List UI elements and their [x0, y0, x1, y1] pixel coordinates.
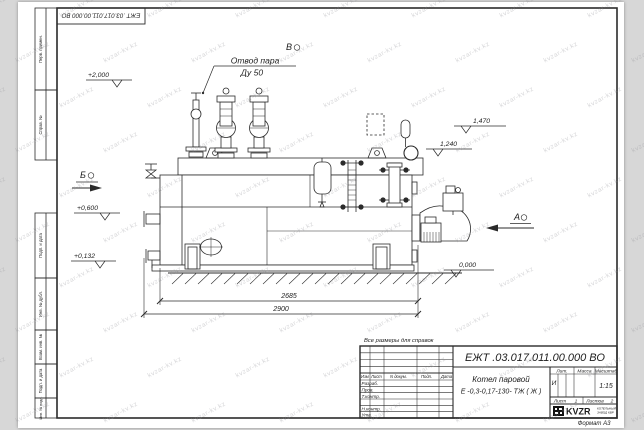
- format-note: Формат А3: [578, 421, 611, 427]
- steam-outlet-valve: [186, 93, 206, 157]
- view-label-a: А: [486, 212, 534, 232]
- burner: [412, 186, 471, 242]
- col-label-inv-dup: Инв. № дубл.: [38, 291, 43, 317]
- sheets-label: Листов: [585, 398, 604, 404]
- col-label-ref-no: Справ. №: [38, 115, 43, 135]
- row-checked: Пров.: [362, 387, 374, 392]
- col-label-first-use: Перв. примен.: [38, 35, 43, 63]
- mass-label: Масса: [577, 369, 592, 375]
- col-label-repl-inv: Взам. инв. №: [38, 334, 43, 360]
- drawing-sheet-page: ЕЖТ .03.017.011.00.000 ВО Перв. примен. …: [0, 0, 644, 430]
- sheets-value: 2: [610, 398, 614, 404]
- callout-text-line1: Отвод пара: [231, 56, 280, 66]
- dim-2900: 2900: [272, 306, 289, 313]
- col-label-sign-date1: Подп. и дата: [38, 232, 43, 257]
- logo-text: KVZR: [566, 407, 591, 417]
- sheet-label: Лист: [553, 398, 566, 404]
- hdr-izm: Изм: [361, 374, 369, 379]
- hdr-list: Лист: [370, 374, 382, 379]
- view-v-letter: В: [286, 42, 292, 52]
- lit-label: Лит.: [555, 369, 567, 375]
- hdr-sign: Подп.: [421, 374, 432, 379]
- elevation-1470: 1,470: [473, 118, 490, 125]
- elevation-0000: 0,000: [459, 262, 476, 269]
- hdr-date: Дата: [440, 374, 453, 379]
- row-approved: Утв.: [362, 413, 372, 418]
- title-block-text: ЕЖТ .03.017.011.00.000 ВО Котел паровой …: [361, 352, 618, 418]
- safety-valve-1: [215, 88, 237, 158]
- callout-text-line2: Ду 50: [240, 68, 263, 78]
- view-label-b: Б: [72, 170, 102, 192]
- elevation-plus0600: +0,600: [77, 205, 98, 212]
- doc-number: ЕЖТ .03.017.011.00.000 ВО: [465, 352, 605, 364]
- hdr-doc: N докум.: [390, 374, 407, 379]
- elevation-1240: 1,240: [440, 141, 457, 148]
- view-label-v: В: [286, 42, 300, 52]
- top-stamp-number: ЕЖТ .03.017.011.00.000 ВО: [61, 11, 140, 18]
- elevation-plus2000: +2,000: [88, 72, 109, 79]
- front-fittings: [144, 164, 160, 268]
- view-a-letter: А: [513, 212, 520, 222]
- drawing-canvas: ЕЖТ .03.017.011.00.000 ВО Перв. примен. …: [0, 0, 644, 430]
- product-name: Котел паровой: [472, 375, 530, 384]
- steam-outlet-callout: Отвод пара Ду 50: [202, 56, 296, 95]
- view-b-letter: Б: [80, 170, 86, 180]
- col-label-sign-date2: Подп. и дата: [38, 368, 43, 393]
- scale-label: Масштаб: [595, 369, 618, 375]
- dim-2685: 2685: [280, 293, 297, 300]
- product-type: Е -0,3-0,17-130- ТЖ ( Ж ): [461, 389, 542, 396]
- company-logo: KVZR КОТЕЛЬНЫЙ ЗАВОД КВР: [553, 406, 617, 417]
- row-ncontrol: Н.контр.: [362, 406, 381, 411]
- row-developed: Разраб.: [362, 381, 379, 386]
- sheet-value: 1: [575, 398, 578, 404]
- scale-value: 1:15: [599, 383, 613, 390]
- col-label-inv-orig: Инв. № подл.: [39, 397, 43, 420]
- elevation-plus0132: +0,132: [74, 253, 95, 260]
- logo-sub2: ЗАВОД КВР: [597, 411, 614, 415]
- safety-valve-2: [248, 88, 270, 158]
- row-tcontrol: Т.контр.: [362, 394, 381, 399]
- reference-note: Все размеры для справок: [364, 338, 434, 344]
- lit-value: И: [552, 380, 557, 387]
- boiler-side-view: [144, 88, 471, 284]
